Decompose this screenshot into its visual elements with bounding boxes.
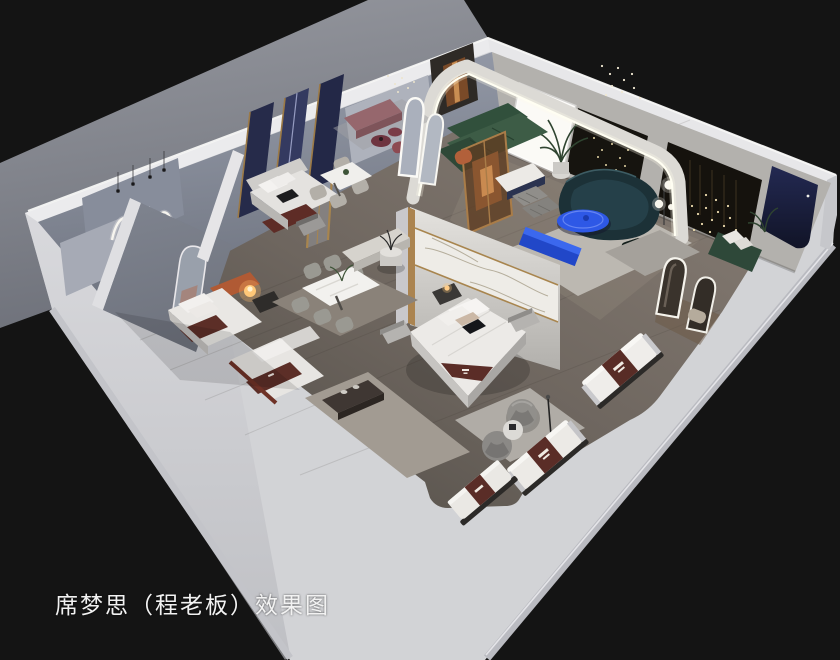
render-screenshot: 席梦思（程老板）效果图 — [0, 0, 840, 660]
caption: 席梦思（程老板）效果图 — [55, 586, 330, 620]
handle-light-dot — [807, 195, 810, 198]
isometric-showroom-render — [0, 0, 840, 660]
